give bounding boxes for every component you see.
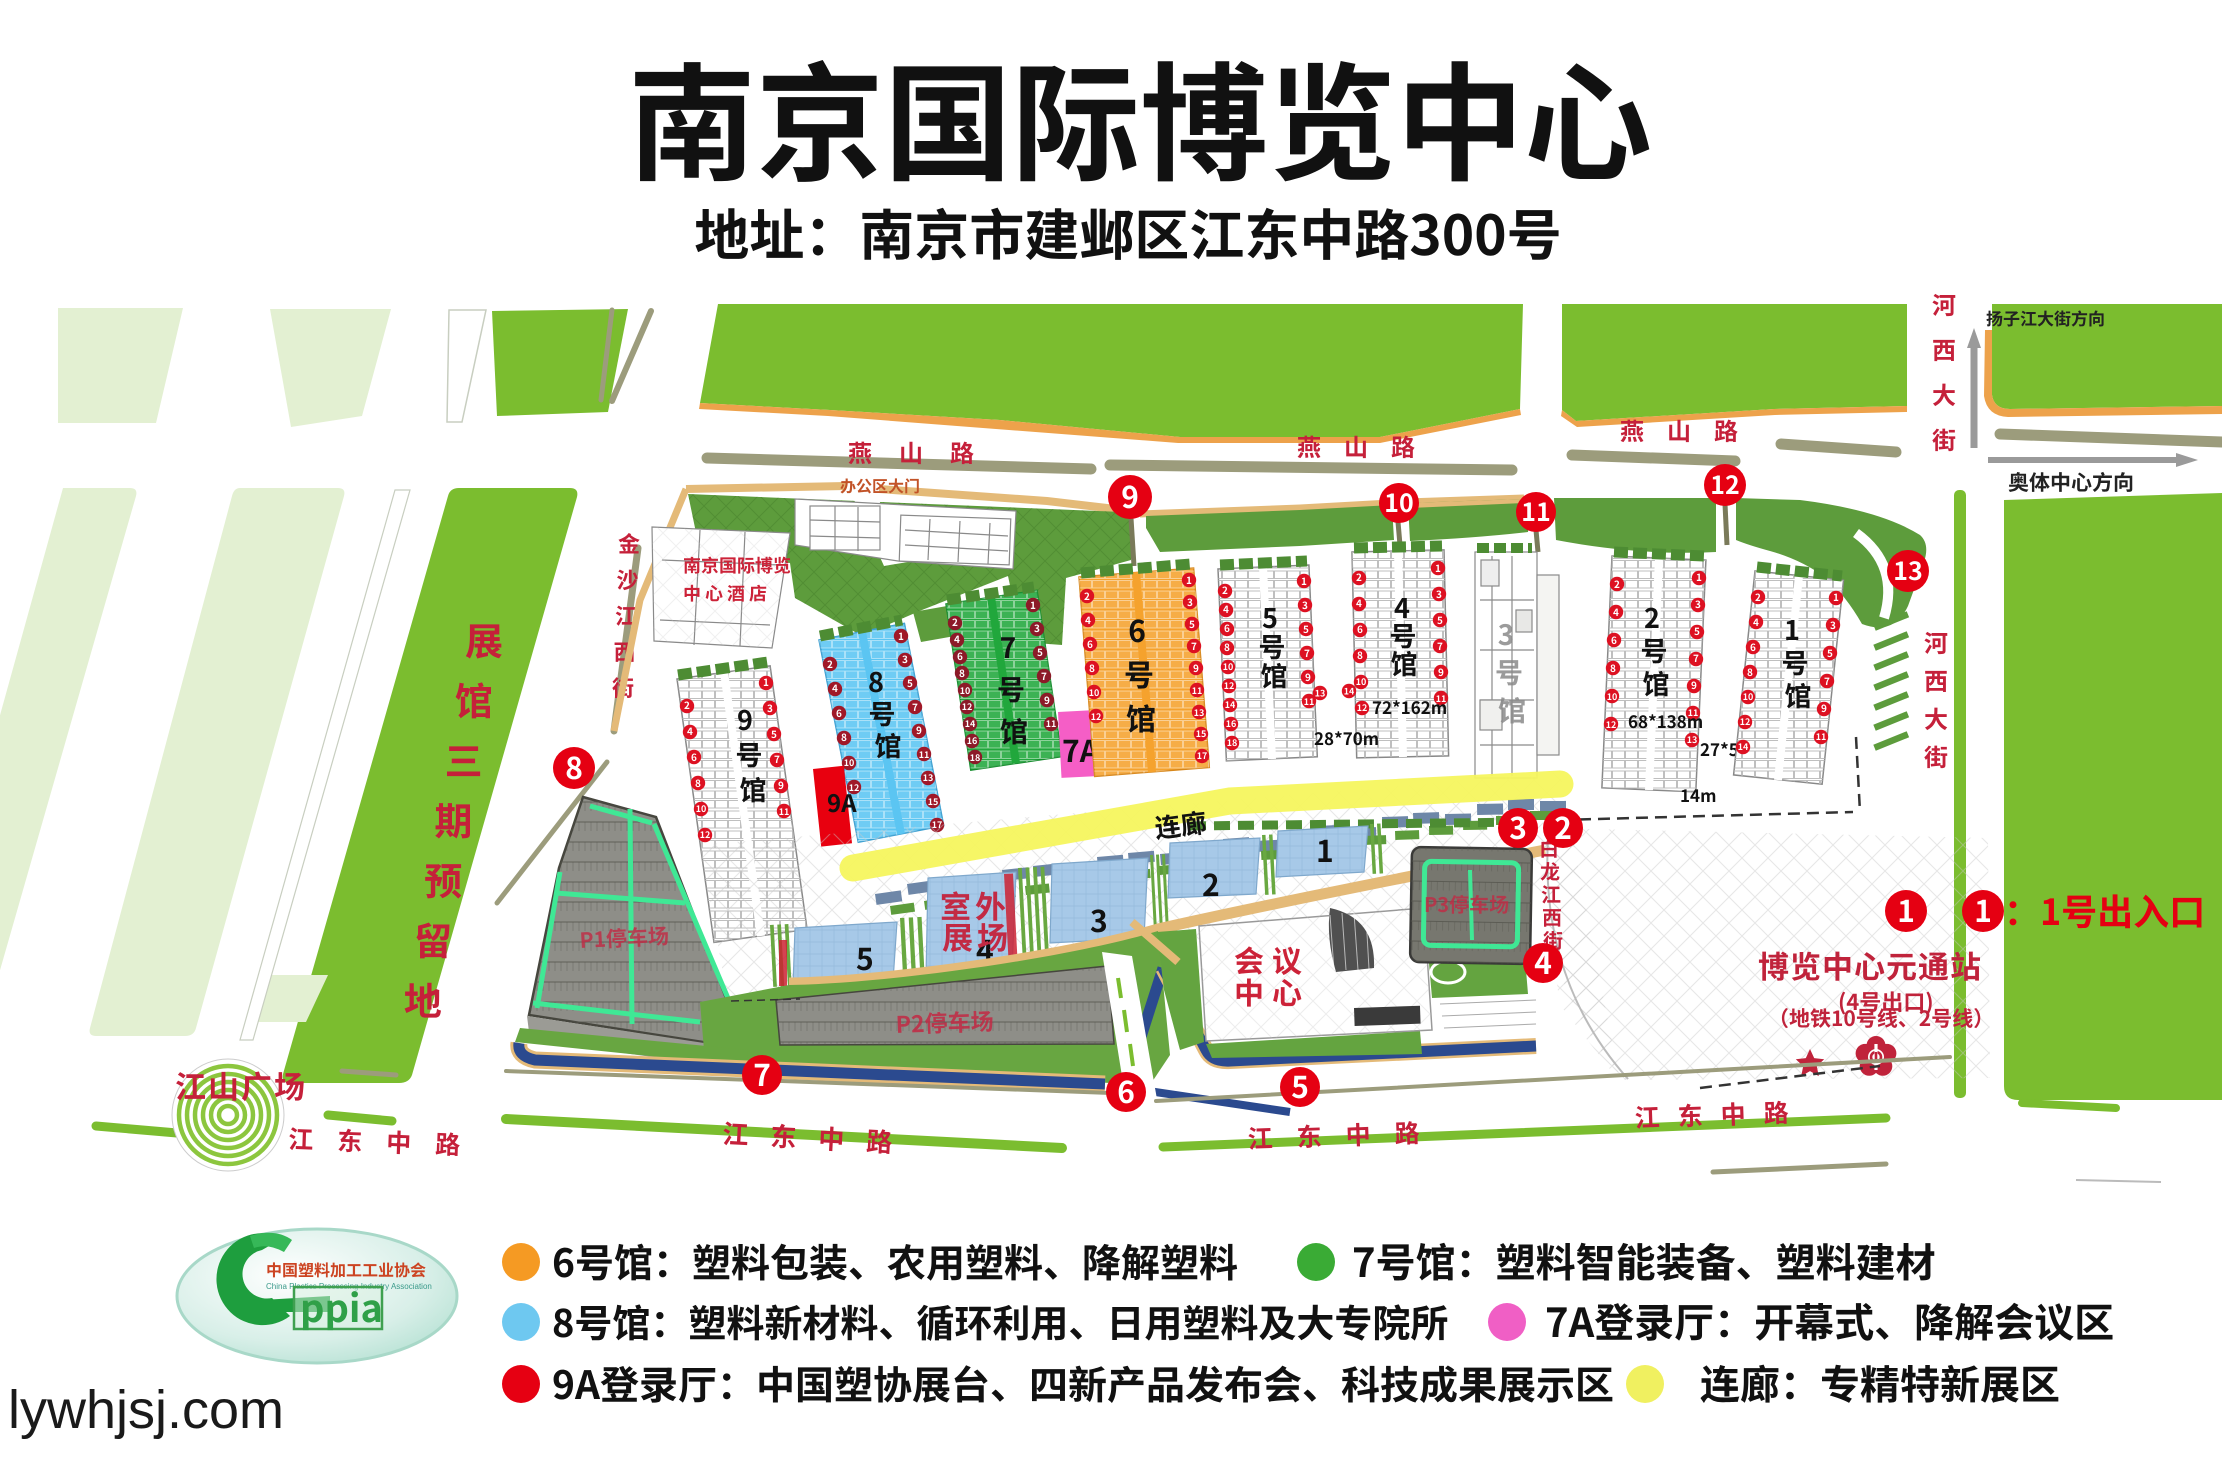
svg-text:lywhjsj.com: lywhjsj.com (8, 1380, 284, 1440)
